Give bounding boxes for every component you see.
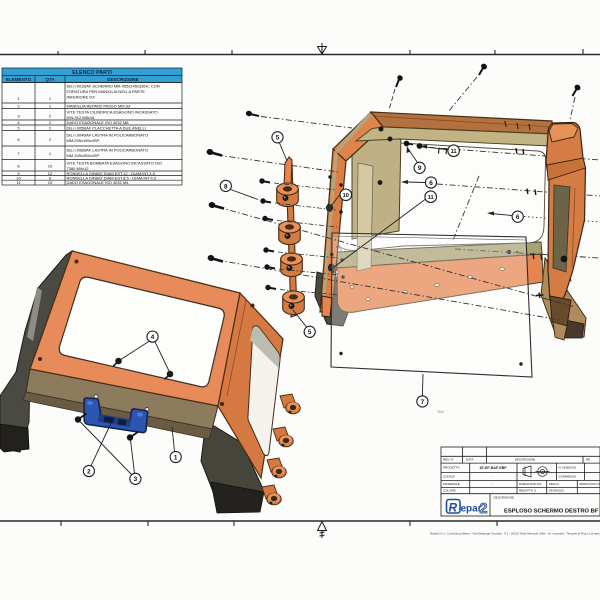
- svg-text:11: 11: [428, 195, 434, 201]
- svg-text:5: 5: [308, 329, 312, 336]
- svg-text:DESCRIZIONE: DESCRIZIONE: [107, 77, 138, 82]
- svg-text:N. DISEGNO: N. DISEGNO: [559, 465, 577, 469]
- svg-text:1: 1: [174, 454, 178, 461]
- svg-text:4: 4: [151, 334, 155, 341]
- svg-text:AT-EF-BAF-EBF: AT-EF-BAF-EBF: [479, 466, 507, 470]
- svg-text:R: R: [449, 501, 458, 515]
- svg-text:ELENCO PARTI: ELENCO PARTI: [72, 70, 112, 76]
- svg-text:7: 7: [421, 399, 425, 406]
- svg-text:MM.295x195x4SP.: MM.295x195x4SP.: [67, 138, 100, 143]
- svg-text:COMMESSA: COMMESSA: [559, 474, 577, 478]
- svg-text:DISEGNATO DA: DISEGNATO DA: [519, 482, 541, 486]
- svg-text:ELEMENTO: ELEMENTO: [6, 77, 32, 82]
- svg-text:ESPLOSO SCHERMO DESTRO BF: ESPLOSO SCHERMO DESTRO BF: [504, 508, 599, 514]
- svg-text:CODICE: CODICE: [443, 474, 455, 478]
- svg-text:03/09/2012: 03/09/2012: [549, 489, 564, 493]
- svg-text:11: 11: [451, 149, 457, 155]
- svg-text:2: 2: [480, 501, 488, 517]
- svg-text:Dis.n.004BAF LASTRA IN POLICAR: Dis.n.004BAF LASTRA IN POLICARBONATO: [67, 133, 148, 138]
- svg-text:REV. N°: REV. N°: [443, 458, 455, 462]
- svg-text:5: 5: [276, 135, 280, 142]
- svg-text:MANIGLIA REPAR2 PASSO MM.93: MANIGLIA REPAR2 PASSO MM.93: [67, 104, 131, 109]
- svg-text:8: 8: [224, 183, 228, 190]
- svg-text:45x5: 45x5: [437, 410, 444, 414]
- svg-text:Dis.n.005BAF PLACCHETTA A DUE: Dis.n.005BAF PLACCHETTA A DUE ANELLI: [67, 125, 146, 130]
- svg-text:2: 2: [87, 468, 91, 475]
- svg-text:DESCRIZIONE: DESCRIZIONE: [494, 496, 515, 500]
- svg-text:DADO ESAGONALE ISO 4032 M4: DADO ESAGONALE ISO 4032 M4: [67, 180, 130, 185]
- svg-text:VERIFICATO DA: VERIFICATO DA: [579, 482, 600, 486]
- svg-text:DATA: DATA: [466, 458, 474, 462]
- svg-text:COLORE: COLORE: [443, 489, 456, 493]
- svg-text:3: 3: [134, 476, 138, 483]
- svg-text:DESCRIZIONE: DESCRIZIONE: [515, 458, 536, 462]
- svg-text:6: 6: [516, 214, 520, 221]
- svg-text:9: 9: [418, 165, 422, 172]
- svg-text:Repar2 S.r.l. Consulting Milan: Repar2 S.r.l. Consulting Milano - Via Al…: [430, 532, 600, 536]
- svg-text:Dis.n.001BAF SCHERMO MM 455x24: Dis.n.001BAF SCHERMO MM 455x245x335H, CO…: [67, 84, 160, 89]
- svg-text:10: 10: [48, 180, 53, 185]
- svg-text:Dis.n.006BAF LASTRA IN POLICAR: Dis.n.006BAF LASTRA IN POLICARBONATO: [67, 148, 148, 153]
- svg-text:PROGETTO: PROGETTO: [443, 466, 460, 470]
- svg-text:10: 10: [343, 193, 349, 199]
- svg-text:MATERIALE: MATERIALE: [443, 482, 460, 486]
- svg-text:6: 6: [429, 180, 433, 187]
- svg-text:VITE TESTA BOMBATA ESAGONO INC: VITE TESTA BOMBATA ESAGONO INCASSATO ISO: [67, 161, 162, 166]
- svg-text:INFERIORE DX: INFERIORE DX: [67, 94, 96, 99]
- svg-text:VITE TESTA CILINDRICA ESAGONO: VITE TESTA CILINDRICA ESAGONO INCASSATO: [67, 110, 158, 115]
- svg-text:MRA G.: MRA G.: [549, 482, 560, 486]
- svg-text:REDATTO IL: REDATTO IL: [519, 489, 537, 493]
- svg-text:10: 10: [48, 164, 53, 169]
- svg-text:MM.345x265x4SP.: MM.345x265x4SP.: [67, 153, 100, 158]
- svg-text:QTA: QTA: [45, 77, 55, 82]
- svg-text:RE: RE: [586, 458, 590, 462]
- svg-text:FORATURA PER MANIGLIA NELLA PA: FORATURA PER MANIGLIA NELLA PARTE: [67, 89, 146, 94]
